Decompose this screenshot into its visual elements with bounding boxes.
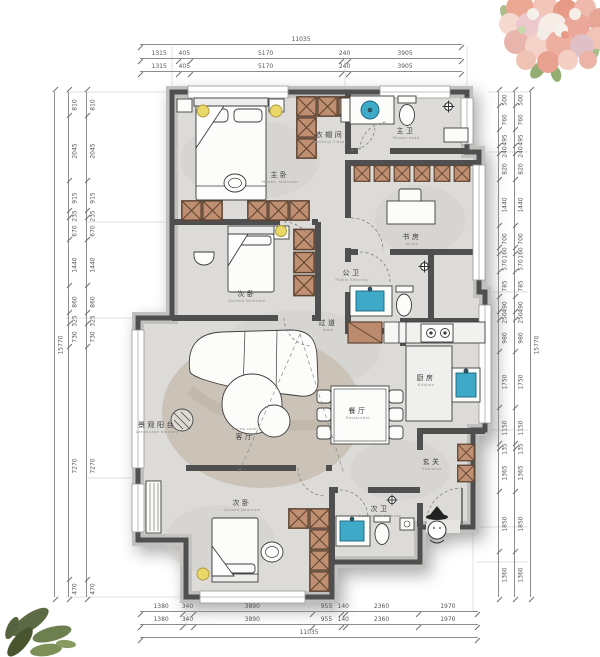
flower-bouquet xyxy=(497,0,600,83)
dim-value: 5170 xyxy=(258,63,273,70)
dim-segment: 240 xyxy=(341,60,348,71)
dim-top-total: 11035 xyxy=(140,33,462,45)
dim-left-total: 15770 xyxy=(54,92,66,597)
dim-value: 1360 xyxy=(517,568,524,583)
dim-top-row-1: 131540551702403905 xyxy=(140,47,462,59)
dim-value: 955 xyxy=(321,603,332,610)
dim-segment: 2360 xyxy=(345,600,417,611)
dim-value: 1360 xyxy=(501,568,508,583)
dim-value: 1380 xyxy=(153,603,168,610)
dim-segment: 1440 xyxy=(499,182,510,228)
dim-right-col-1: 5007604952408201440700160570785490250980… xyxy=(498,92,510,597)
dim-value: 7270 xyxy=(89,458,96,473)
dim-segment: 1970 xyxy=(418,600,478,611)
dim-bottom-row-2: 1380340389095514023601970 xyxy=(140,613,478,625)
dim-segment: 470 xyxy=(69,582,80,597)
dim-value: 7270 xyxy=(71,458,78,473)
dim-value: 470 xyxy=(89,584,96,595)
dim-value: 760 xyxy=(517,114,524,125)
dim-segment: 1440 xyxy=(87,242,98,288)
ceiling-light xyxy=(270,105,282,117)
dim-value: 1150 xyxy=(501,420,508,435)
dim-value: 3890 xyxy=(245,616,260,623)
dim-value: 785 xyxy=(501,281,508,292)
dim-segment: 5170 xyxy=(190,60,341,71)
dim-value: 1440 xyxy=(71,257,78,272)
dim-value: 760 xyxy=(501,114,508,125)
dim-value: 860 xyxy=(71,296,78,307)
dim-value: 820 xyxy=(517,163,524,174)
dim-value: 1750 xyxy=(517,374,524,389)
dim-segment: 1750 xyxy=(499,354,510,410)
dim-value: 405 xyxy=(179,50,190,57)
dim-value: 15770 xyxy=(57,335,64,354)
dim-segment: 7270 xyxy=(69,349,80,582)
radiator xyxy=(146,481,161,533)
dim-value: 11035 xyxy=(299,629,318,636)
dim-value: 860 xyxy=(89,296,96,307)
dim-value: 820 xyxy=(501,163,508,174)
dim-segment: 1850 xyxy=(515,494,526,553)
dim-value: 11035 xyxy=(291,36,310,43)
dim-value: 915 xyxy=(71,192,78,203)
dim-segment: 500 xyxy=(499,92,510,108)
dim-value: 3890 xyxy=(245,603,260,610)
public-bath-fixtures xyxy=(350,286,413,316)
dim-right-col-2: 5007604952408201440700160570785490250980… xyxy=(514,92,526,597)
dim-segment: 240 xyxy=(341,47,348,58)
dim-value: 2045 xyxy=(71,143,78,158)
ceiling-light xyxy=(197,568,209,580)
dim-segment: 500 xyxy=(515,92,526,108)
dim-value: 2360 xyxy=(374,616,389,623)
dim-value: 1750 xyxy=(501,374,508,389)
dim-right-total: 15770 xyxy=(530,92,542,597)
dim-segment: 3890 xyxy=(193,613,312,624)
dim-segment: 3905 xyxy=(348,47,462,58)
dim-value: 980 xyxy=(517,332,524,343)
dim-value: 1315 xyxy=(152,63,167,70)
dim-value: 500 xyxy=(517,94,524,105)
dim-value: 470 xyxy=(71,584,78,595)
dim-segment: 340 xyxy=(182,600,192,611)
dim-segment: 3905 xyxy=(348,60,462,71)
dim-value: 915 xyxy=(89,192,96,203)
dim-segment: 2045 xyxy=(87,118,98,183)
dim-value: 700 xyxy=(517,233,524,244)
dim-value: 500 xyxy=(501,94,508,105)
dim-value: 1970 xyxy=(440,616,455,623)
ceiling-light xyxy=(276,226,287,237)
dim-value: 955 xyxy=(321,616,332,623)
ceiling-light xyxy=(197,105,209,117)
corner-leaves xyxy=(2,603,76,657)
dim-value: 730 xyxy=(89,332,96,343)
dim-value: 700 xyxy=(501,233,508,244)
dim-value: 670 xyxy=(71,225,78,236)
dim-value: 495 xyxy=(501,134,508,145)
dim-bottom-row-1: 1380340389095514023601970 xyxy=(140,600,478,612)
dim-segment: 1750 xyxy=(515,354,526,410)
dim-value: 730 xyxy=(71,332,78,343)
dim-segment: 1970 xyxy=(418,613,478,624)
floor-plan-canvas: 主卧 Master bedroom 衣帽间 Walking Closet 主卫 … xyxy=(0,0,600,657)
dining-set xyxy=(317,386,403,444)
dim-segment: 1850 xyxy=(499,494,510,553)
dim-value: 3905 xyxy=(397,50,412,57)
dim-value: 1850 xyxy=(517,516,524,531)
dim-segment: 405 xyxy=(178,60,190,71)
dim-segment: 405 xyxy=(178,47,190,58)
dim-value: 1380 xyxy=(153,616,168,623)
coffee-table-small xyxy=(258,405,290,437)
dim-value: 1150 xyxy=(517,420,524,435)
dim-value: 1970 xyxy=(440,603,455,610)
dim-value: 495 xyxy=(517,134,524,145)
dim-value: 810 xyxy=(89,99,96,110)
dim-segment: 1380 xyxy=(140,600,182,611)
dim-value: 1365 xyxy=(501,465,508,480)
dim-segment: 2045 xyxy=(69,118,80,183)
dim-segment: 5170 xyxy=(190,47,341,58)
dim-bottom-total: 11035 xyxy=(140,626,478,638)
dim-value: 3905 xyxy=(397,63,412,70)
dim-value: 1850 xyxy=(501,516,508,531)
plan-body xyxy=(132,86,491,603)
dim-value: 670 xyxy=(89,225,96,236)
dim-segment: 1440 xyxy=(69,242,80,288)
dim-segment: 1315 xyxy=(140,47,178,58)
dim-value: 405 xyxy=(179,63,190,70)
dim-value: 1440 xyxy=(501,197,508,212)
dim-segment: 1380 xyxy=(140,613,182,624)
dim-segment: 7270 xyxy=(87,349,98,582)
dim-value: 340 xyxy=(182,603,193,610)
dim-left-col-2: 810204591523567014408603257307270470 xyxy=(86,92,98,597)
dim-value: 490 xyxy=(517,301,524,312)
dim-segment: 1360 xyxy=(515,554,526,597)
dim-segment: 1315 xyxy=(140,60,178,71)
dim-value: 1440 xyxy=(89,257,96,272)
dim-value: 5170 xyxy=(258,50,273,57)
dim-value: 785 xyxy=(517,281,524,292)
dim-segment: 1440 xyxy=(515,182,526,228)
dim-value: 2360 xyxy=(374,603,389,610)
dim-value: 340 xyxy=(182,616,193,623)
dim-segment: 3890 xyxy=(193,600,312,611)
dim-value: 810 xyxy=(71,99,78,110)
dim-segment: 2360 xyxy=(345,613,417,624)
dim-value: 980 xyxy=(501,332,508,343)
rattan-stool xyxy=(171,409,193,431)
dim-value: 490 xyxy=(501,301,508,312)
dim-value: 1440 xyxy=(517,197,524,212)
dim-value: 1365 xyxy=(517,465,524,480)
dim-value: 1315 xyxy=(152,50,167,57)
dim-value: 15770 xyxy=(533,335,540,354)
dim-segment: 470 xyxy=(87,582,98,597)
dim-top-row-2: 131540551702403905 xyxy=(140,60,462,72)
dim-segment: 1360 xyxy=(499,554,510,597)
dim-left-col-1: 810204591523567014408603257307270470 xyxy=(68,92,80,597)
dim-value: 2045 xyxy=(89,143,96,158)
dim-segment: 340 xyxy=(182,613,192,624)
